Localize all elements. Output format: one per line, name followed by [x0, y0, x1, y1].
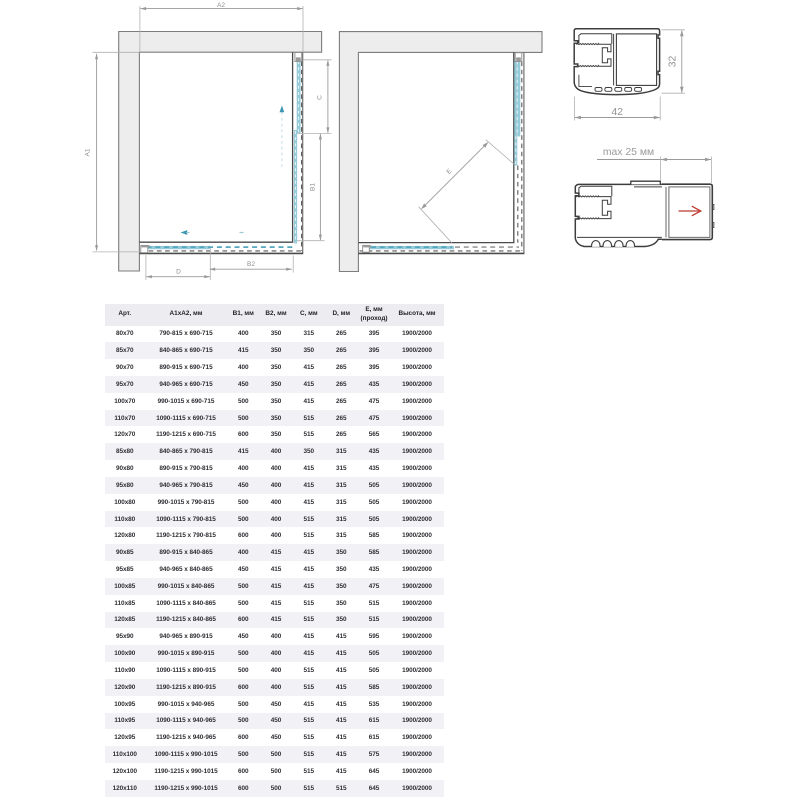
- svg-text:32: 32: [668, 56, 679, 68]
- svg-text:C: C: [317, 95, 324, 100]
- svg-text:B2: B2: [247, 261, 255, 268]
- svg-text:A1: A1: [85, 148, 92, 156]
- svg-text:42: 42: [612, 107, 624, 118]
- svg-text:B1: B1: [309, 183, 316, 191]
- svg-text:E: E: [446, 167, 454, 175]
- svg-text:max 25 мм: max 25 мм: [603, 147, 654, 158]
- svg-text:D: D: [176, 269, 181, 276]
- svg-text:A2: A2: [217, 2, 225, 9]
